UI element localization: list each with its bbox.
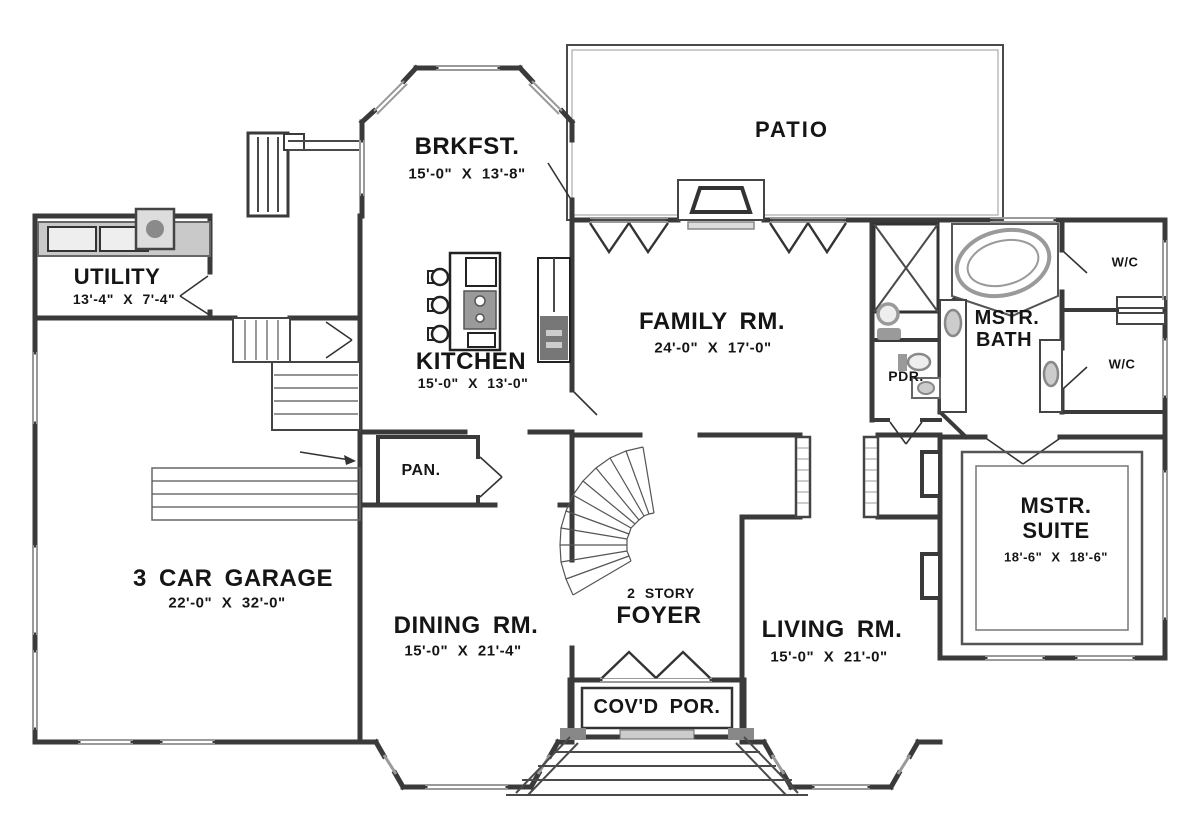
- room-label-family: FAMILY RM.: [639, 310, 785, 334]
- room-dims-living: 15'-0" X 21'-0": [770, 650, 887, 665]
- room-label-utility: UTILITY: [74, 266, 161, 288]
- kitchen-island: [450, 253, 500, 350]
- chimney: [248, 133, 360, 216]
- shower-fixture: [874, 224, 938, 312]
- refrigerator: [538, 258, 570, 362]
- room-label-patio: PATIO: [755, 119, 829, 141]
- room-dims-garage: 22'-0" X 32'-0": [168, 596, 285, 611]
- room-label-wc-bottom: W/C: [1109, 358, 1136, 371]
- room-label-pdr: PDR.: [888, 369, 923, 383]
- exterior-walls: [35, 68, 1165, 787]
- room-dims-brkfst: 15'-0" X 13'-8": [408, 167, 525, 182]
- room-label-foyer-2: FOYER: [616, 604, 701, 628]
- room-label-kitchen: KITCHEN: [416, 350, 526, 374]
- room-label-mstr-bath-2: BATH: [976, 330, 1032, 350]
- floor-plan: BRKFST. 15'-0" X 13'-8" PATIO UTILITY 13…: [0, 0, 1200, 833]
- room-dims-family: 24'-0" X 17'-0": [654, 341, 771, 356]
- room-label-mstr-suite-1: MSTR.: [1021, 495, 1092, 517]
- tray-ceiling: [962, 452, 1142, 644]
- room-label-dining: DINING RM.: [394, 614, 539, 638]
- room-dims-kitchen: 15'-0" X 13'-0": [418, 376, 529, 390]
- room-dims-mstr-suite: 18'-6" X 18'-6": [1004, 551, 1108, 564]
- room-label-mstr-suite-2: SUITE: [1022, 520, 1089, 542]
- room-label-mstr-bath-1: MSTR.: [975, 308, 1040, 328]
- pedestal-sink-fixture: [877, 304, 901, 340]
- room-label-brkfst: BRKFST.: [415, 135, 520, 159]
- back-stairs: [152, 318, 360, 520]
- room-dims-utility: 13'-4" X 7'-4": [73, 292, 175, 306]
- fireplace: [678, 180, 764, 229]
- room-label-garage: 3 CAR GARAGE: [133, 567, 333, 591]
- room-label-living: LIVING RM.: [762, 618, 903, 642]
- hall-columns: [796, 437, 878, 517]
- room-label-wc-top: W/C: [1112, 256, 1139, 269]
- room-label-covd-por: COV'D POR.: [594, 697, 721, 717]
- room-label-foyer-1: 2 STORY: [627, 586, 695, 600]
- room-dims-dining: 15'-0" X 21'-4": [404, 644, 521, 659]
- island-stools: [428, 269, 448, 342]
- washer-fixture: [48, 227, 96, 251]
- room-label-pan: PAN.: [401, 463, 440, 479]
